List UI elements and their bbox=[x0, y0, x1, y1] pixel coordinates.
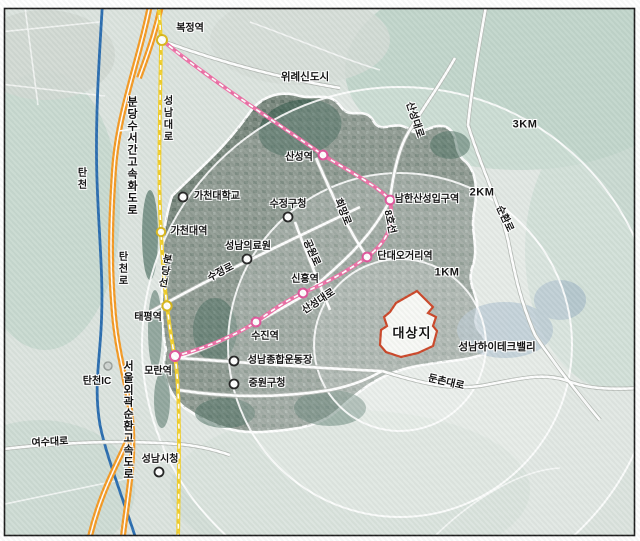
label-station-sanseong: 산성역 bbox=[285, 153, 313, 163]
label-station-dandae: 단대오거리역 bbox=[377, 252, 432, 262]
station-marker-taepyeong bbox=[162, 301, 171, 310]
label-poi-medical-center: 성남의료원 bbox=[225, 242, 271, 252]
label-poi-jungwon-office: 중원구청 bbox=[249, 379, 286, 389]
label-road-yeosu-daero: 여수대로 bbox=[31, 437, 68, 449]
label-road-seongnam-daero: 성남대로 bbox=[161, 95, 171, 143]
label-road-bundang-suseo-expwy: 분당수서간고속화도로 bbox=[126, 96, 137, 216]
station-marker-gachon bbox=[157, 228, 165, 236]
station-marker-moran bbox=[170, 351, 180, 361]
label-ring-2km: 2KM bbox=[470, 188, 495, 199]
poi-marker-sujeong-office bbox=[284, 213, 293, 222]
label-road-seoul-ring-expwy: 서울외곽순환고속도로 bbox=[122, 360, 133, 480]
label-station-gachon: 가천대역 bbox=[171, 227, 208, 237]
poi-marker-sports-complex bbox=[230, 357, 239, 366]
station-marker-namhansanseong bbox=[386, 196, 395, 205]
label-area-tancheon: 탄천 bbox=[75, 167, 85, 191]
label-ring-1km: 1KM bbox=[435, 268, 460, 279]
poi-marker-city-hall bbox=[155, 468, 164, 477]
label-poi-city-hall: 성남시청 bbox=[142, 455, 179, 465]
label-station-moran: 모란역 bbox=[144, 367, 172, 377]
poi-marker-jungwon-office bbox=[230, 380, 239, 389]
station-marker-sujin bbox=[252, 318, 261, 327]
label-ring-3km: 3KM bbox=[513, 120, 538, 131]
label-poi-sujeong-office: 수정구청 bbox=[270, 200, 307, 210]
map-screenshot: 복정역 위례신도시 성남대로 분당수서간고속화도로 탄천 가천대학교 수정구청 … bbox=[0, 0, 640, 541]
label-station-sujin: 수진역 bbox=[251, 332, 279, 342]
poi-marker-gachon-univ bbox=[179, 193, 188, 202]
label-station-sinheung: 신흥역 bbox=[291, 275, 319, 285]
label-station-bokjeong: 복정역 bbox=[176, 24, 204, 34]
station-marker-sinheung bbox=[299, 289, 308, 298]
label-poi-tancheon-ic: 탄천IC bbox=[83, 377, 111, 387]
poi-marker-tancheon-ic bbox=[104, 362, 112, 370]
label-area-wirye: 위례신도시 bbox=[281, 72, 329, 83]
poi-marker-medical-center bbox=[243, 255, 252, 264]
label-area-hitech-valley: 성남하이테크밸리 bbox=[458, 342, 535, 353]
label-station-namhansanseong: 남한산성입구역 bbox=[395, 195, 459, 205]
label-poi-gachon-univ: 가천대학교 bbox=[194, 192, 240, 202]
station-marker-dandae bbox=[363, 253, 372, 262]
label-poi-sports-complex: 성남종합운동장 bbox=[248, 356, 312, 366]
label-site: 대상지 bbox=[393, 327, 432, 340]
label-road-tancheon-ro: 탄천로 bbox=[116, 251, 126, 287]
label-station-taepyeong: 태평역 bbox=[134, 313, 162, 323]
station-marker-sanseong bbox=[319, 151, 328, 160]
station-marker-bokjeong bbox=[157, 35, 167, 45]
